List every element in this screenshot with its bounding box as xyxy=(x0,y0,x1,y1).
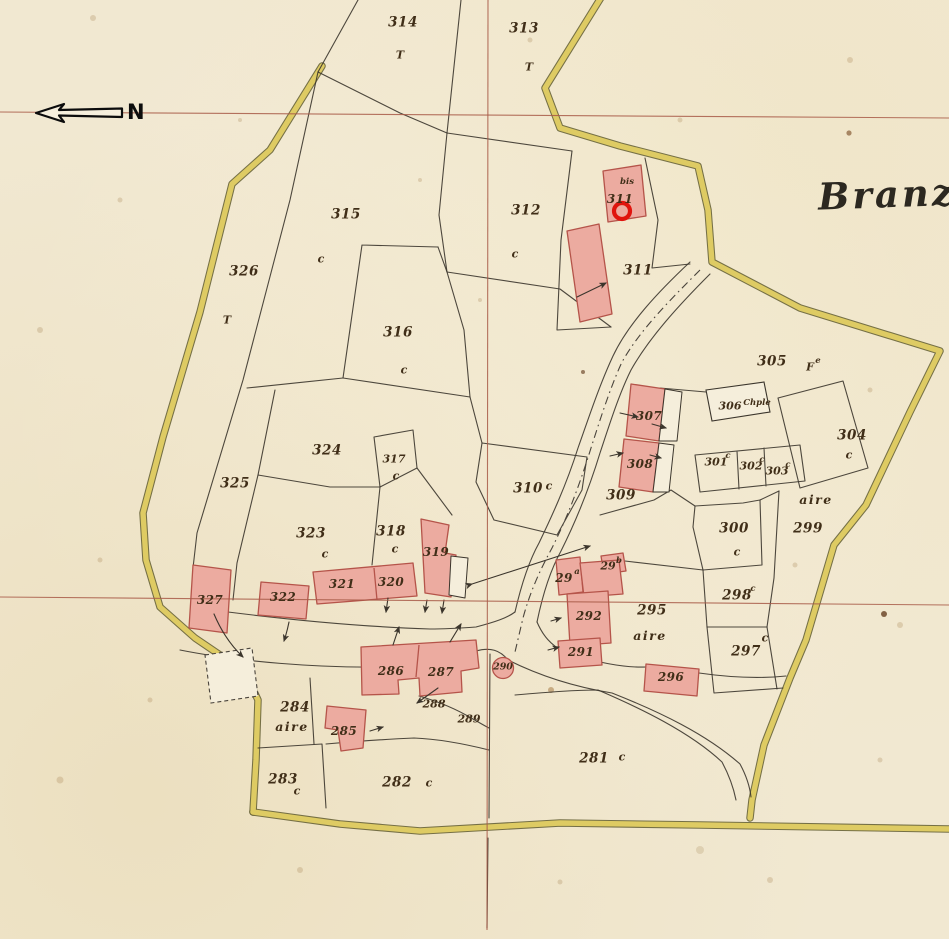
building-311bis xyxy=(603,165,646,222)
yellow-roads xyxy=(143,0,949,831)
north-arrow-icon xyxy=(36,104,122,122)
dashed-outline-building xyxy=(205,648,258,703)
building-29a xyxy=(556,557,583,595)
cadastral-map: Branza N 314T313T315c312c326T316cbis3113… xyxy=(0,0,949,939)
building-296 xyxy=(644,664,699,696)
building-311 xyxy=(567,224,612,322)
building-322 xyxy=(258,582,309,619)
chapel-306 xyxy=(706,382,770,421)
building-291 xyxy=(558,638,602,668)
building-292 xyxy=(567,591,611,646)
building-308 xyxy=(619,439,659,492)
building-286-287 xyxy=(361,640,479,696)
parcel-boundaries xyxy=(180,0,868,928)
building-307 xyxy=(626,384,665,441)
north-label: N xyxy=(127,100,145,124)
map-canvas xyxy=(0,0,949,939)
building-285 xyxy=(325,706,366,751)
survey-grid-lines xyxy=(0,0,949,930)
building-321-320 xyxy=(313,563,417,604)
building-290-round xyxy=(493,658,514,679)
paper-stains xyxy=(37,15,903,885)
map-title: Branza xyxy=(817,169,949,219)
